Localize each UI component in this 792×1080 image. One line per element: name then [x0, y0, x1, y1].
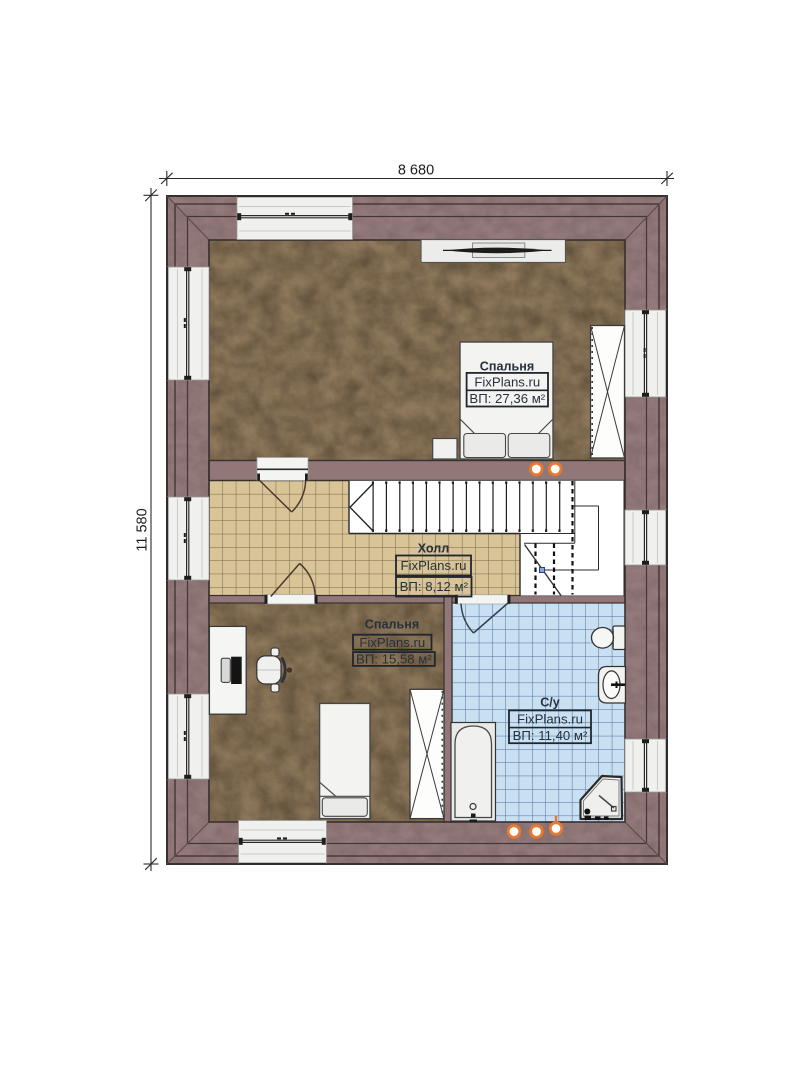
- svg-text:ВП: 8,12 м²: ВП: 8,12 м²: [400, 579, 469, 594]
- svg-text:Холл: Холл: [418, 541, 450, 555]
- svg-text:FixPlans.ru: FixPlans.ru: [474, 374, 540, 389]
- svg-text:ВП: 27,36 м²: ВП: 27,36 м²: [469, 391, 545, 406]
- svg-text:ВП: 15,58 м²: ВП: 15,58 м²: [356, 651, 432, 666]
- svg-text:Спальня: Спальня: [480, 359, 534, 373]
- svg-text:С/у: С/у: [540, 695, 560, 709]
- svg-text:ВП: 11,40 м²: ВП: 11,40 м²: [513, 728, 588, 743]
- svg-text:8 680: 8 680: [398, 163, 434, 179]
- svg-text:11 580: 11 580: [135, 508, 151, 551]
- svg-text:FixPlans.ru: FixPlans.ru: [517, 712, 583, 727]
- svg-text:FixPlans.ru: FixPlans.ru: [359, 635, 425, 650]
- svg-text:FixPlans.ru: FixPlans.ru: [401, 558, 467, 573]
- svg-text:Спальня: Спальня: [365, 617, 419, 631]
